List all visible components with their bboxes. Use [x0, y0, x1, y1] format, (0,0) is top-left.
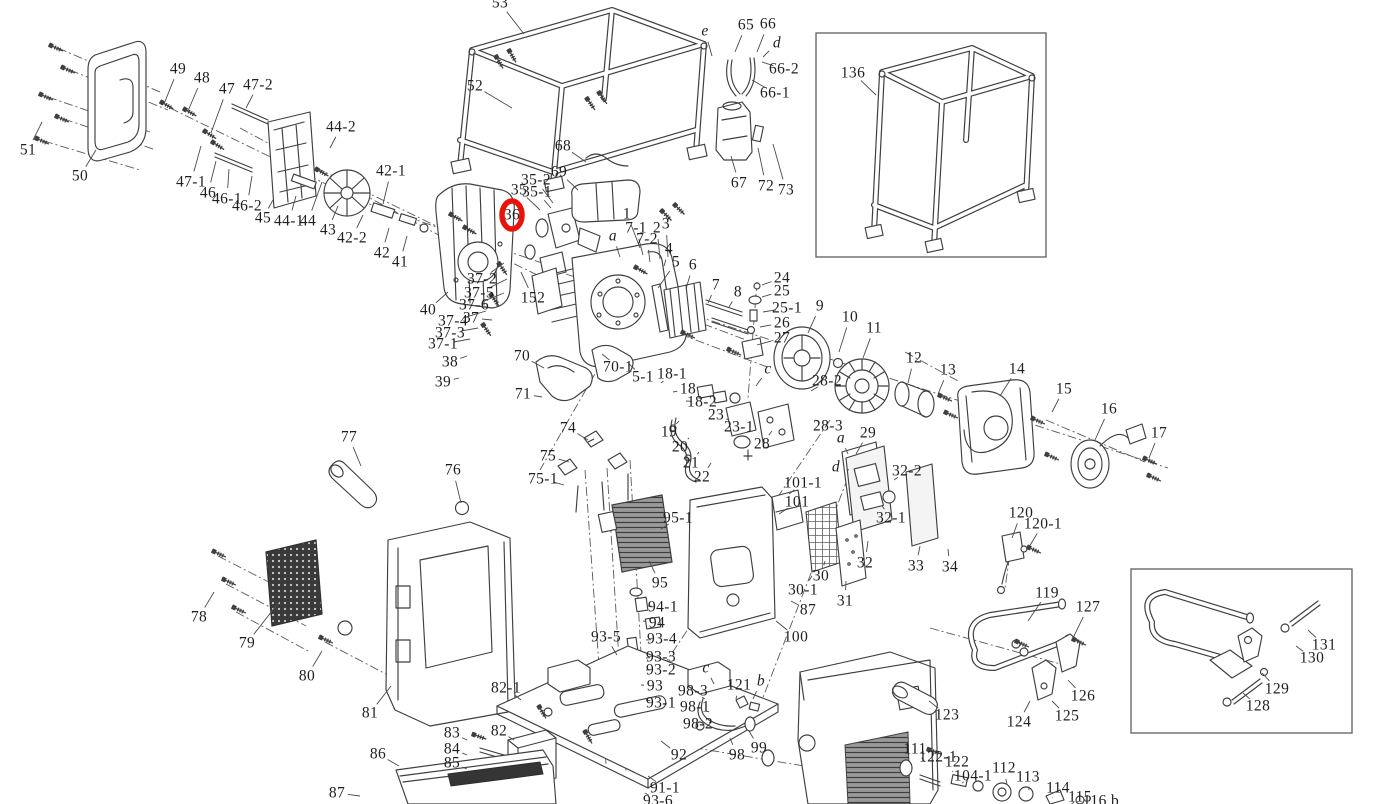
leader-line-25 — [762, 294, 771, 297]
part-label-27-52: 27 — [774, 330, 790, 346]
part-label-21-88: 21 — [683, 455, 699, 471]
leader-line-92 — [661, 741, 670, 748]
leader-line-131 — [1308, 630, 1316, 637]
fuel-hoses — [716, 58, 763, 160]
leader-line-82 — [508, 737, 514, 740]
leader-line-48 — [188, 88, 198, 111]
part-label-66-1-32: 66-1 — [760, 85, 790, 101]
leader-line-a — [616, 246, 620, 257]
bracket-panel-group — [758, 404, 938, 546]
leader-line-16 — [1095, 419, 1104, 440]
leader-line-34 — [948, 549, 949, 556]
leader-line-120 — [1012, 523, 1017, 538]
mount-pad — [548, 660, 590, 692]
part-label-8-47: 8 — [734, 284, 742, 300]
part-label-95-1-106: 95-1 — [663, 510, 693, 526]
leader-line-4 — [664, 260, 666, 266]
leader-line-129 — [1262, 673, 1269, 681]
leader-line-35-2 — [543, 189, 553, 203]
fan-43 — [324, 170, 370, 216]
panel-45 — [215, 104, 316, 208]
side-panel-86 — [396, 750, 556, 804]
leader-line-74 — [577, 434, 588, 440]
fan-cover-14 — [958, 380, 1034, 475]
part-label-12-56: 12 — [906, 350, 922, 366]
part-label-113-155: 113 — [1016, 769, 1040, 785]
part-label-37-6-65: 37-6 — [459, 297, 489, 313]
leader-line-68 — [572, 152, 586, 162]
part-label-120-1-149: 120-1 — [1024, 516, 1062, 532]
screws — [34, 42, 1162, 756]
leader-line-49 — [164, 79, 174, 104]
part-label-73-35: 73 — [778, 182, 794, 198]
leader-line-76 — [456, 481, 461, 503]
leader-line-125 — [1052, 701, 1059, 708]
part-label-18-78: 18 — [680, 381, 696, 397]
leader-line-7-1 — [639, 239, 643, 255]
part-label-53-19: 53 — [492, 0, 508, 11]
leader-line-18-1 — [661, 381, 663, 383]
label-layer: 515049484747-247-14646-146-24544-1444344… — [0, 0, 1373, 804]
part-label-4-42: 4 — [665, 241, 673, 257]
leader-line-111 — [922, 758, 925, 762]
leader-line-19 — [676, 421, 679, 424]
part-label-74-95: 74 — [560, 420, 576, 436]
part-label-79-101: 79 — [239, 635, 255, 651]
leader-line-37-1 — [454, 339, 470, 342]
muffler-95 — [598, 495, 672, 572]
leader-line-47-1 — [194, 146, 201, 171]
leader-line-6 — [686, 276, 690, 289]
part-label-87-122: 87 — [800, 602, 816, 618]
leader-line-35 — [527, 198, 540, 210]
part-label-152-72: 152 — [521, 290, 545, 306]
part-label-46-7: 46 — [200, 185, 216, 201]
leader-line-100 — [776, 621, 787, 630]
brand-strip — [448, 762, 543, 786]
leader-line-91-1 — [648, 776, 656, 782]
part-label-24-48: 24 — [774, 270, 790, 286]
part-label-82-125: 82 — [491, 723, 507, 739]
leader-line-70 — [532, 361, 544, 368]
part-label-70-1-75: 70-1 — [603, 359, 633, 375]
leader-line-33 — [918, 546, 920, 555]
part-label-126-144: 126 — [1071, 688, 1095, 704]
handle-kit-inset — [1147, 592, 1320, 706]
leader-line-18 — [673, 391, 677, 392]
leader-line-87 — [791, 601, 798, 605]
leader-line-85 — [462, 767, 467, 769]
part-label-a-91: a — [837, 430, 845, 446]
leader-line-93-5 — [612, 646, 617, 655]
part-label-23-80: 23 — [708, 407, 724, 423]
leader-line-46-1 — [228, 169, 229, 188]
leader-line-29 — [856, 443, 863, 454]
leader-line-126 — [1068, 680, 1075, 688]
shaft-parts-42 — [371, 203, 428, 232]
front-door-81 — [338, 522, 515, 726]
part-label-a-43: a — [609, 228, 617, 244]
leader-line-104-1 — [962, 782, 964, 783]
leader-line-d — [763, 51, 769, 57]
leader-line-130 — [1296, 646, 1303, 651]
leader-line-28-3 — [815, 420, 818, 421]
leader-line-27 — [757, 341, 771, 345]
part-label-18-1-77: 18-1 — [657, 366, 687, 382]
leader-line-93-6 — [645, 793, 649, 795]
part-label-87-130: 87 — [329, 785, 345, 801]
part-label-82-1-124: 82-1 — [491, 680, 521, 696]
part-label-7-46: 7 — [712, 277, 720, 293]
leader-line-127 — [1073, 617, 1083, 638]
leader-line-84 — [462, 753, 467, 755]
leader-line-7 — [708, 295, 712, 303]
part-label-1-37: 1 — [623, 206, 631, 222]
leader-line-37-6 — [484, 293, 504, 301]
part-label-111-150: 111 — [903, 741, 926, 757]
part-label-101-1-104: 101-1 — [784, 475, 822, 491]
leader-line-73 — [773, 144, 783, 179]
leader-line-c — [711, 678, 714, 684]
part-label-37-67: 37 — [463, 310, 479, 326]
leader-line-32 — [866, 541, 868, 552]
leader-line-20 — [688, 438, 689, 439]
clamps-74-75 — [558, 431, 628, 512]
leader-line-39 — [454, 378, 459, 379]
leader-line-e — [708, 42, 712, 56]
leader-line-10 — [839, 327, 847, 352]
part-label-42-2-16: 42-2 — [337, 230, 367, 246]
part-label-d-30: d — [773, 35, 781, 51]
frame-136 — [865, 48, 1035, 253]
part-label-32-2-93: 32-2 — [892, 463, 922, 479]
leader-line-8 — [729, 301, 732, 307]
leader-line-15 — [1052, 399, 1059, 412]
leader-line-77 — [353, 447, 361, 466]
shroud-40 — [436, 184, 515, 308]
part-label-115-157: 115 — [1068, 789, 1092, 804]
highlight-layer — [0, 0, 1373, 804]
part-label-33-120: 33 — [908, 558, 924, 574]
leader-line-30 — [824, 561, 825, 565]
part-label-c-134: c — [702, 660, 709, 676]
part-label-65-28: 65 — [738, 17, 754, 33]
leader-line-d — [847, 469, 849, 470]
leader-line-66-2 — [762, 62, 774, 66]
leader-line-67 — [731, 156, 736, 172]
leader-line-37-2 — [491, 263, 504, 273]
leader-line-a — [845, 448, 848, 454]
part-label-30-117: 30 — [813, 568, 829, 584]
leader-line-80 — [313, 651, 322, 667]
part-label-92-139: 92 — [671, 747, 687, 763]
part-label-44-12: 44 — [300, 213, 316, 229]
part-label-114-156: 114 — [1046, 780, 1070, 796]
part-label-35-24: 35 — [511, 182, 527, 198]
part-label-48-3: 48 — [194, 70, 210, 86]
part-label-100-123: 100 — [784, 629, 808, 645]
leader-line-47-2 — [246, 95, 253, 108]
leader-line-121 — [736, 696, 737, 699]
part-label-13-57: 13 — [940, 362, 956, 378]
leader-line-13 — [938, 380, 944, 394]
leader-line-120-1 — [1029, 533, 1037, 547]
stator-6 — [652, 282, 748, 338]
leader-line-124 — [1024, 701, 1030, 712]
hose-98 — [698, 696, 760, 731]
part-label-31-118: 31 — [837, 593, 853, 609]
oring-76 — [456, 502, 469, 515]
engine-block — [532, 244, 687, 367]
part-label-86-129: 86 — [370, 746, 386, 762]
leader-lines — [33, 12, 1316, 804]
leader-line-38 — [460, 356, 467, 358]
part-label-99-137: 99 — [751, 740, 767, 756]
part-label-17-61: 17 — [1151, 425, 1167, 441]
part-label-5-44: 5 — [672, 254, 680, 270]
part-label-78-100: 78 — [191, 609, 207, 625]
leader-line-43 — [332, 206, 338, 220]
part-label-37-1-69: 37-1 — [428, 336, 458, 352]
part-label-127-143: 127 — [1076, 599, 1100, 615]
leader-line-45 — [268, 200, 273, 208]
part-label-121-135: 121 — [727, 677, 751, 693]
leader-line-66 — [757, 34, 764, 52]
leader-line-81 — [377, 686, 391, 704]
part-label-46-2-9: 46-2 — [232, 198, 262, 214]
leader-line-12 — [908, 369, 911, 383]
leader-line-5 — [658, 271, 670, 288]
leader-line-22 — [708, 463, 711, 468]
part-label-124-146: 124 — [1007, 714, 1031, 730]
leader-line-79 — [254, 602, 279, 634]
part-label-36-26: 36 — [504, 207, 520, 223]
part-label-29-90: 29 — [860, 425, 876, 441]
part-label-93-4-111: 93-4 — [647, 631, 677, 647]
part-label-129-161: 129 — [1265, 681, 1289, 697]
leader-line-c — [756, 378, 762, 386]
leader-line-78 — [205, 592, 214, 608]
leader-line-42-2 — [357, 215, 363, 228]
part-label-47-4: 47 — [219, 81, 235, 97]
leader-line-44 — [312, 182, 322, 211]
leader-line-28 — [769, 431, 772, 435]
roller-123 — [893, 682, 938, 714]
part-label-83-126: 83 — [444, 725, 460, 741]
part-label-95-107: 95 — [652, 575, 668, 591]
heat-shields — [536, 345, 633, 400]
part-label-2-40: 2 — [653, 220, 661, 236]
leader-line-42 — [385, 228, 389, 242]
part-label-35-2-23: 35-2 — [521, 172, 551, 188]
part-label-51-0: 51 — [20, 142, 36, 158]
leader-line-70-1 — [602, 354, 609, 360]
part-label-28-85: 28 — [754, 436, 770, 452]
leader-line-44-1 — [292, 196, 296, 210]
part-label-68-21: 68 — [555, 138, 571, 154]
part-label-80-102: 80 — [299, 668, 315, 684]
leader-line-24 — [762, 282, 772, 285]
part-label-94-1-108: 94-1 — [648, 599, 678, 615]
part-label-37-3-68: 37-3 — [435, 325, 465, 341]
part-label-40-62: 40 — [420, 302, 436, 318]
leader-line-42-1 — [383, 182, 388, 204]
part-label-5-1-76: 5-1 — [632, 369, 654, 385]
leader-line-46-2 — [249, 176, 252, 195]
leader-line-51 — [33, 122, 42, 140]
part-label-28-3-84: 28-3 — [813, 418, 843, 434]
part-label-25-1-50: 25-1 — [772, 300, 802, 316]
leader-line-28-2 — [811, 387, 818, 391]
leader-line-101 — [779, 508, 788, 514]
leader-line-37-5 — [489, 279, 507, 288]
part-label-18-2-79: 18-2 — [687, 394, 717, 410]
carburetor-23 — [697, 385, 756, 460]
inverter-housing — [762, 652, 938, 804]
part-label-76-99: 76 — [445, 462, 461, 478]
part-label-84-127: 84 — [444, 741, 460, 757]
leader-line-44-2 — [330, 137, 336, 148]
part-label-45-10: 45 — [255, 210, 271, 226]
rear-housing-100 — [688, 487, 803, 638]
leader-line-40 — [436, 292, 448, 303]
part-label-32-1-94: 32-1 — [876, 510, 906, 526]
leader-line-1 — [631, 224, 640, 248]
part-label-11-55: 11 — [866, 320, 882, 336]
leader-line-26 — [760, 325, 771, 327]
leader-line-72 — [758, 148, 764, 175]
part-label-98-3-131: 98-3 — [678, 683, 708, 699]
part-label-93-114: 93 — [647, 678, 663, 694]
leader-line-30-1 — [809, 576, 812, 581]
exploded-parts-diagram: 515049484747-247-14646-146-24544-1444344… — [0, 0, 1373, 804]
leader-line-101-1 — [789, 490, 794, 494]
part-label-b-136: b — [757, 673, 765, 689]
base-plate-92 — [497, 646, 778, 788]
leader-line-5-1 — [629, 364, 635, 370]
part-label-116-b-158: 116 b — [1083, 793, 1119, 804]
leader-line-50 — [86, 150, 96, 167]
part-label-41-18: 41 — [392, 254, 408, 270]
assembly-axes — [44, 48, 1168, 782]
leader-line-66-1 — [752, 80, 765, 88]
part-label-37-2-63: 37-2 — [467, 271, 497, 287]
part-label-93-3-112: 93-3 — [646, 649, 676, 665]
part-label-136-36: 136 — [841, 65, 865, 81]
part-label-7-1-38: 7-1 — [625, 220, 647, 236]
part-label-98-1-132: 98-1 — [680, 699, 710, 715]
leader-line-37 — [482, 319, 492, 320]
part-label-81-103: 81 — [362, 705, 378, 721]
part-label-120-148: 120 — [1009, 505, 1033, 521]
part-label-49-2: 49 — [170, 61, 186, 77]
part-label-c-82: c — [764, 361, 771, 377]
leader-line-14 — [1000, 378, 1011, 396]
part-label-e-27: e — [701, 23, 708, 39]
leader-line-46 — [211, 161, 216, 182]
parts-24-27 — [742, 283, 763, 359]
part-label-94-109: 94 — [649, 615, 665, 631]
part-label-112-154: 112 — [992, 760, 1016, 776]
part-label-44-2-14: 44-2 — [326, 119, 356, 135]
leader-line-95 — [649, 561, 655, 573]
leader-line-17 — [1149, 443, 1155, 458]
leader-line-21 — [697, 452, 699, 454]
frame-inset-box — [816, 33, 1046, 257]
part-label-70-73: 70 — [514, 348, 530, 364]
leader-line-71 — [534, 396, 542, 397]
part-label-20-87: 20 — [672, 439, 688, 455]
part-label-25-49: 25 — [774, 283, 790, 299]
part-label-98-2-133: 98-2 — [683, 716, 713, 732]
leader-line-41 — [403, 236, 407, 251]
oring-80 — [338, 621, 352, 635]
cover-69 — [572, 154, 640, 222]
part-label-85-128: 85 — [444, 755, 460, 771]
part-label-37-5-64: 37-5 — [464, 285, 494, 301]
leader-line-128 — [1243, 693, 1250, 699]
fuel-pipe — [670, 418, 700, 482]
leader-line-65 — [735, 35, 742, 52]
leader-line-83 — [462, 738, 467, 740]
tube-77 — [329, 461, 469, 515]
part-label-35-1-25: 35-1 — [522, 184, 552, 200]
part-label-93-2-113: 93-2 — [646, 662, 676, 678]
part-label-69-22: 69 — [551, 164, 567, 180]
part-label-38-70: 38 — [442, 354, 458, 370]
leader-line-32-1 — [882, 506, 884, 509]
part-label-75-96: 75 — [540, 448, 556, 464]
part-label-131-159: 131 — [1312, 637, 1336, 653]
part-label-9-53: 9 — [816, 298, 824, 314]
part-label-10-54: 10 — [842, 309, 858, 325]
part-label-67-33: 67 — [731, 175, 747, 191]
part-label-52-20: 52 — [467, 78, 483, 94]
recoil-16 — [1071, 424, 1146, 488]
panel-33 — [906, 464, 938, 546]
part-label-22-89: 22 — [694, 469, 710, 485]
part-label-16-60: 16 — [1101, 401, 1117, 417]
part-label-37-4-66: 37-4 — [438, 313, 468, 329]
part-label-66-2-31: 66-2 — [769, 61, 799, 77]
leader-line-86 — [388, 759, 399, 766]
part-label-39-71: 39 — [435, 374, 451, 390]
leader-line-3 — [667, 235, 668, 257]
leader-line-99 — [749, 731, 753, 739]
leader-line-37-3 — [461, 328, 478, 331]
highlight-circle-36 — [502, 201, 522, 229]
door-101 — [772, 490, 803, 530]
leader-line-b — [753, 691, 757, 699]
part-label-50-1: 50 — [72, 168, 88, 184]
leader-line-2 — [658, 239, 660, 259]
leader-line-32-2 — [894, 477, 898, 480]
knob-32-1 — [883, 491, 895, 503]
leader-line-87 — [348, 794, 360, 796]
part-label-119-142: 119 — [1035, 585, 1059, 601]
part-label-93-1-115: 93-1 — [646, 695, 676, 711]
part-label-93-6-141: 93-6 — [643, 793, 673, 804]
leader-line-119 — [1028, 602, 1041, 621]
part-label-23-1-81: 23-1 — [724, 419, 754, 435]
part-label-125-145: 125 — [1055, 708, 1079, 724]
part-label-104-1-153: 104-1 — [954, 768, 992, 784]
part-label-123-147: 123 — [935, 707, 959, 723]
part-label-71-74: 71 — [515, 386, 531, 402]
leader-line-47 — [211, 99, 223, 133]
part-label-42-17: 42 — [374, 245, 390, 261]
part-label-93-5-110: 93-5 — [591, 629, 621, 645]
